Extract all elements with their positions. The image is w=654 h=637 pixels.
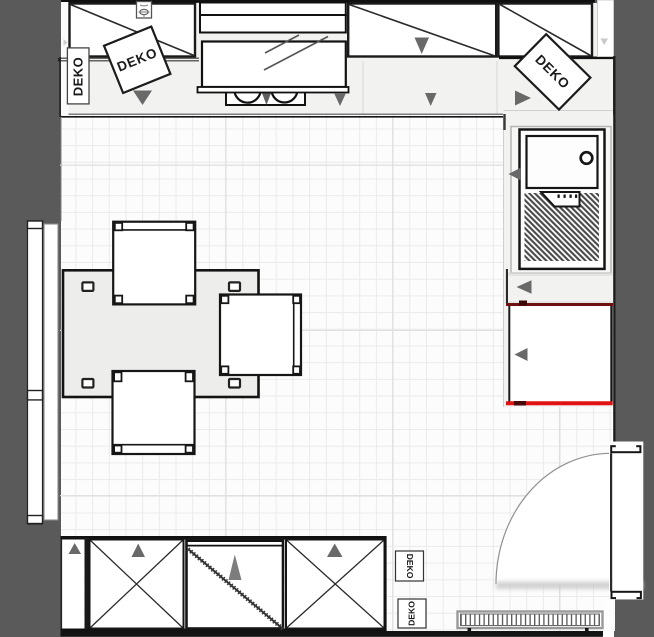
svg-text:DEKO: DEKO: [406, 601, 416, 626]
svg-text:DEKO: DEKO: [405, 554, 415, 579]
svg-text:DEKO: DEKO: [70, 57, 85, 97]
